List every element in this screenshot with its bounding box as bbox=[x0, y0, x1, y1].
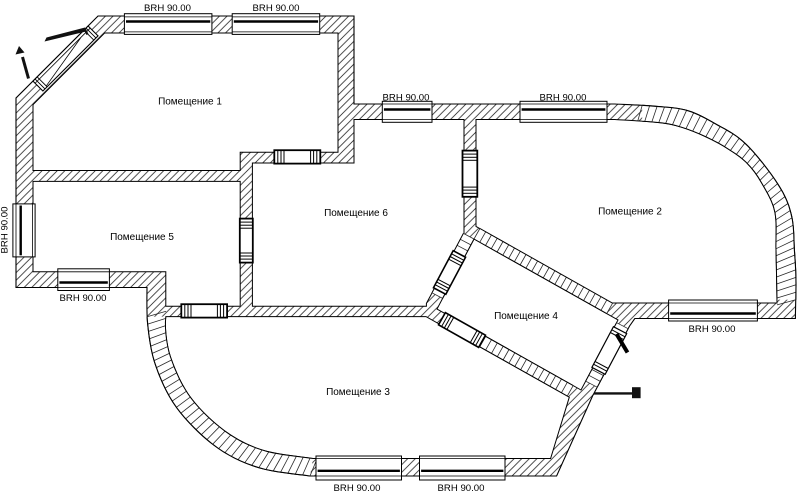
svg-text:BRH 90.00: BRH 90.00 bbox=[438, 483, 485, 493]
svg-text:Помещение 3: Помещение 3 bbox=[326, 387, 390, 398]
svg-text:BRH 90.00: BRH 90.00 bbox=[60, 293, 107, 304]
svg-text:BRH 90.00: BRH 90.00 bbox=[334, 483, 381, 493]
svg-text:BRH 90.00: BRH 90.00 bbox=[144, 3, 191, 14]
svg-text:Помещение 4: Помещение 4 bbox=[494, 311, 558, 322]
svg-text:BRH 90.00: BRH 90.00 bbox=[253, 3, 300, 14]
svg-text:Помещение 6: Помещение 6 bbox=[324, 208, 388, 219]
svg-text:Помещение 2: Помещение 2 bbox=[598, 207, 662, 218]
svg-text:BRH 90.00: BRH 90.00 bbox=[383, 93, 430, 104]
svg-text:BRH 90.00: BRH 90.00 bbox=[540, 93, 587, 104]
svg-text:Помещение 1: Помещение 1 bbox=[158, 97, 222, 108]
svg-text:BRH 90.00: BRH 90.00 bbox=[0, 207, 11, 254]
svg-text:Помещение 5: Помещение 5 bbox=[110, 232, 174, 243]
svg-text:BRH 90.00: BRH 90.00 bbox=[689, 324, 736, 335]
